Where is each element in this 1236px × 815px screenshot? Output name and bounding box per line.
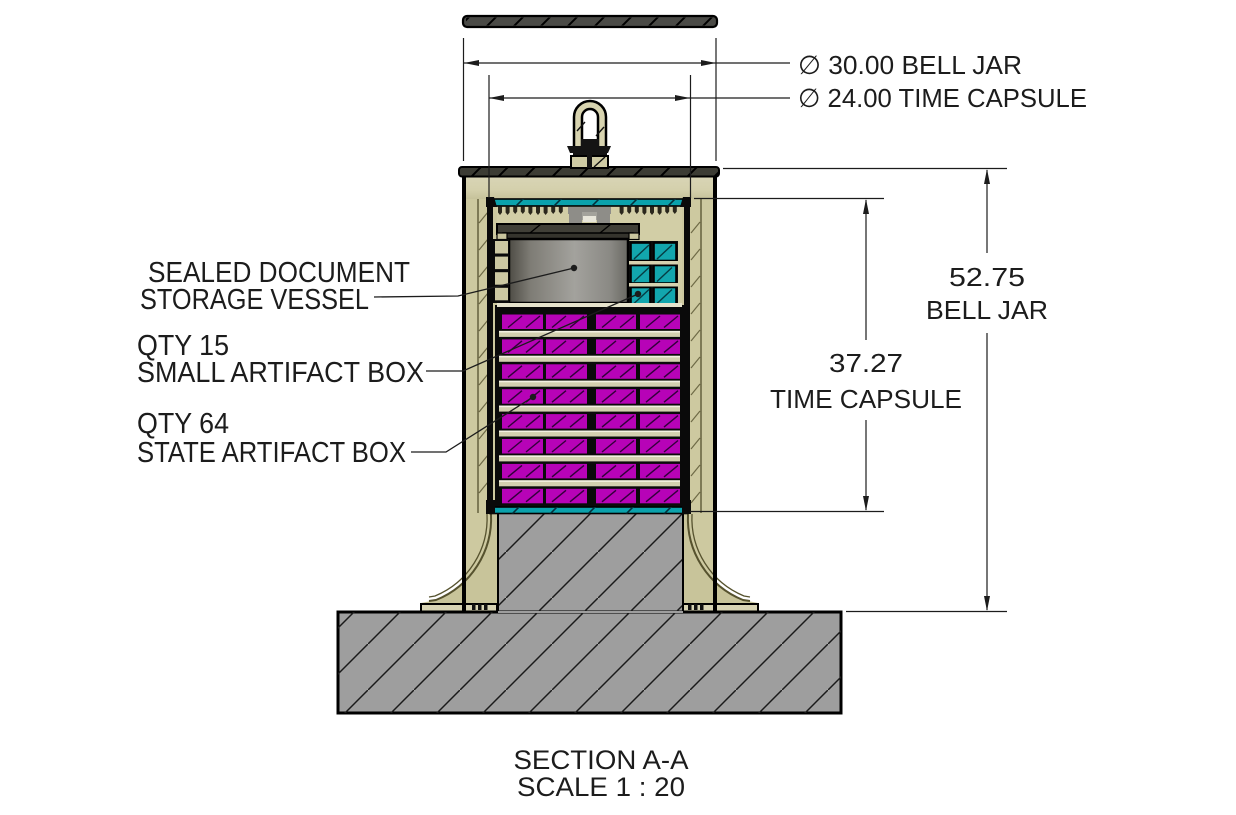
svg-text:SCALE 1 : 20: SCALE 1 : 20 [517,772,685,802]
svg-text:SMALL ARTIFACT BOX: SMALL ARTIFACT BOX [137,357,424,389]
svg-text:BELL JAR: BELL JAR [926,295,1048,325]
svg-text:STORAGE VESSEL: STORAGE VESSEL [140,284,369,316]
svg-text:STATE ARTIFACT BOX: STATE ARTIFACT BOX [137,437,406,469]
svg-text:TIME CAPSULE: TIME CAPSULE [770,384,962,414]
svg-text:∅ 30.00 BELL JAR: ∅ 30.00 BELL JAR [798,50,1022,80]
svg-text:SECTION A-A: SECTION A-A [514,745,689,775]
svg-text:∅ 24.00 TIME CAPSULE: ∅ 24.00 TIME CAPSULE [798,83,1087,113]
svg-text:52.75: 52.75 [949,262,1025,292]
svg-text:QTY 64: QTY 64 [137,408,229,440]
svg-text:37.27: 37.27 [829,348,903,378]
